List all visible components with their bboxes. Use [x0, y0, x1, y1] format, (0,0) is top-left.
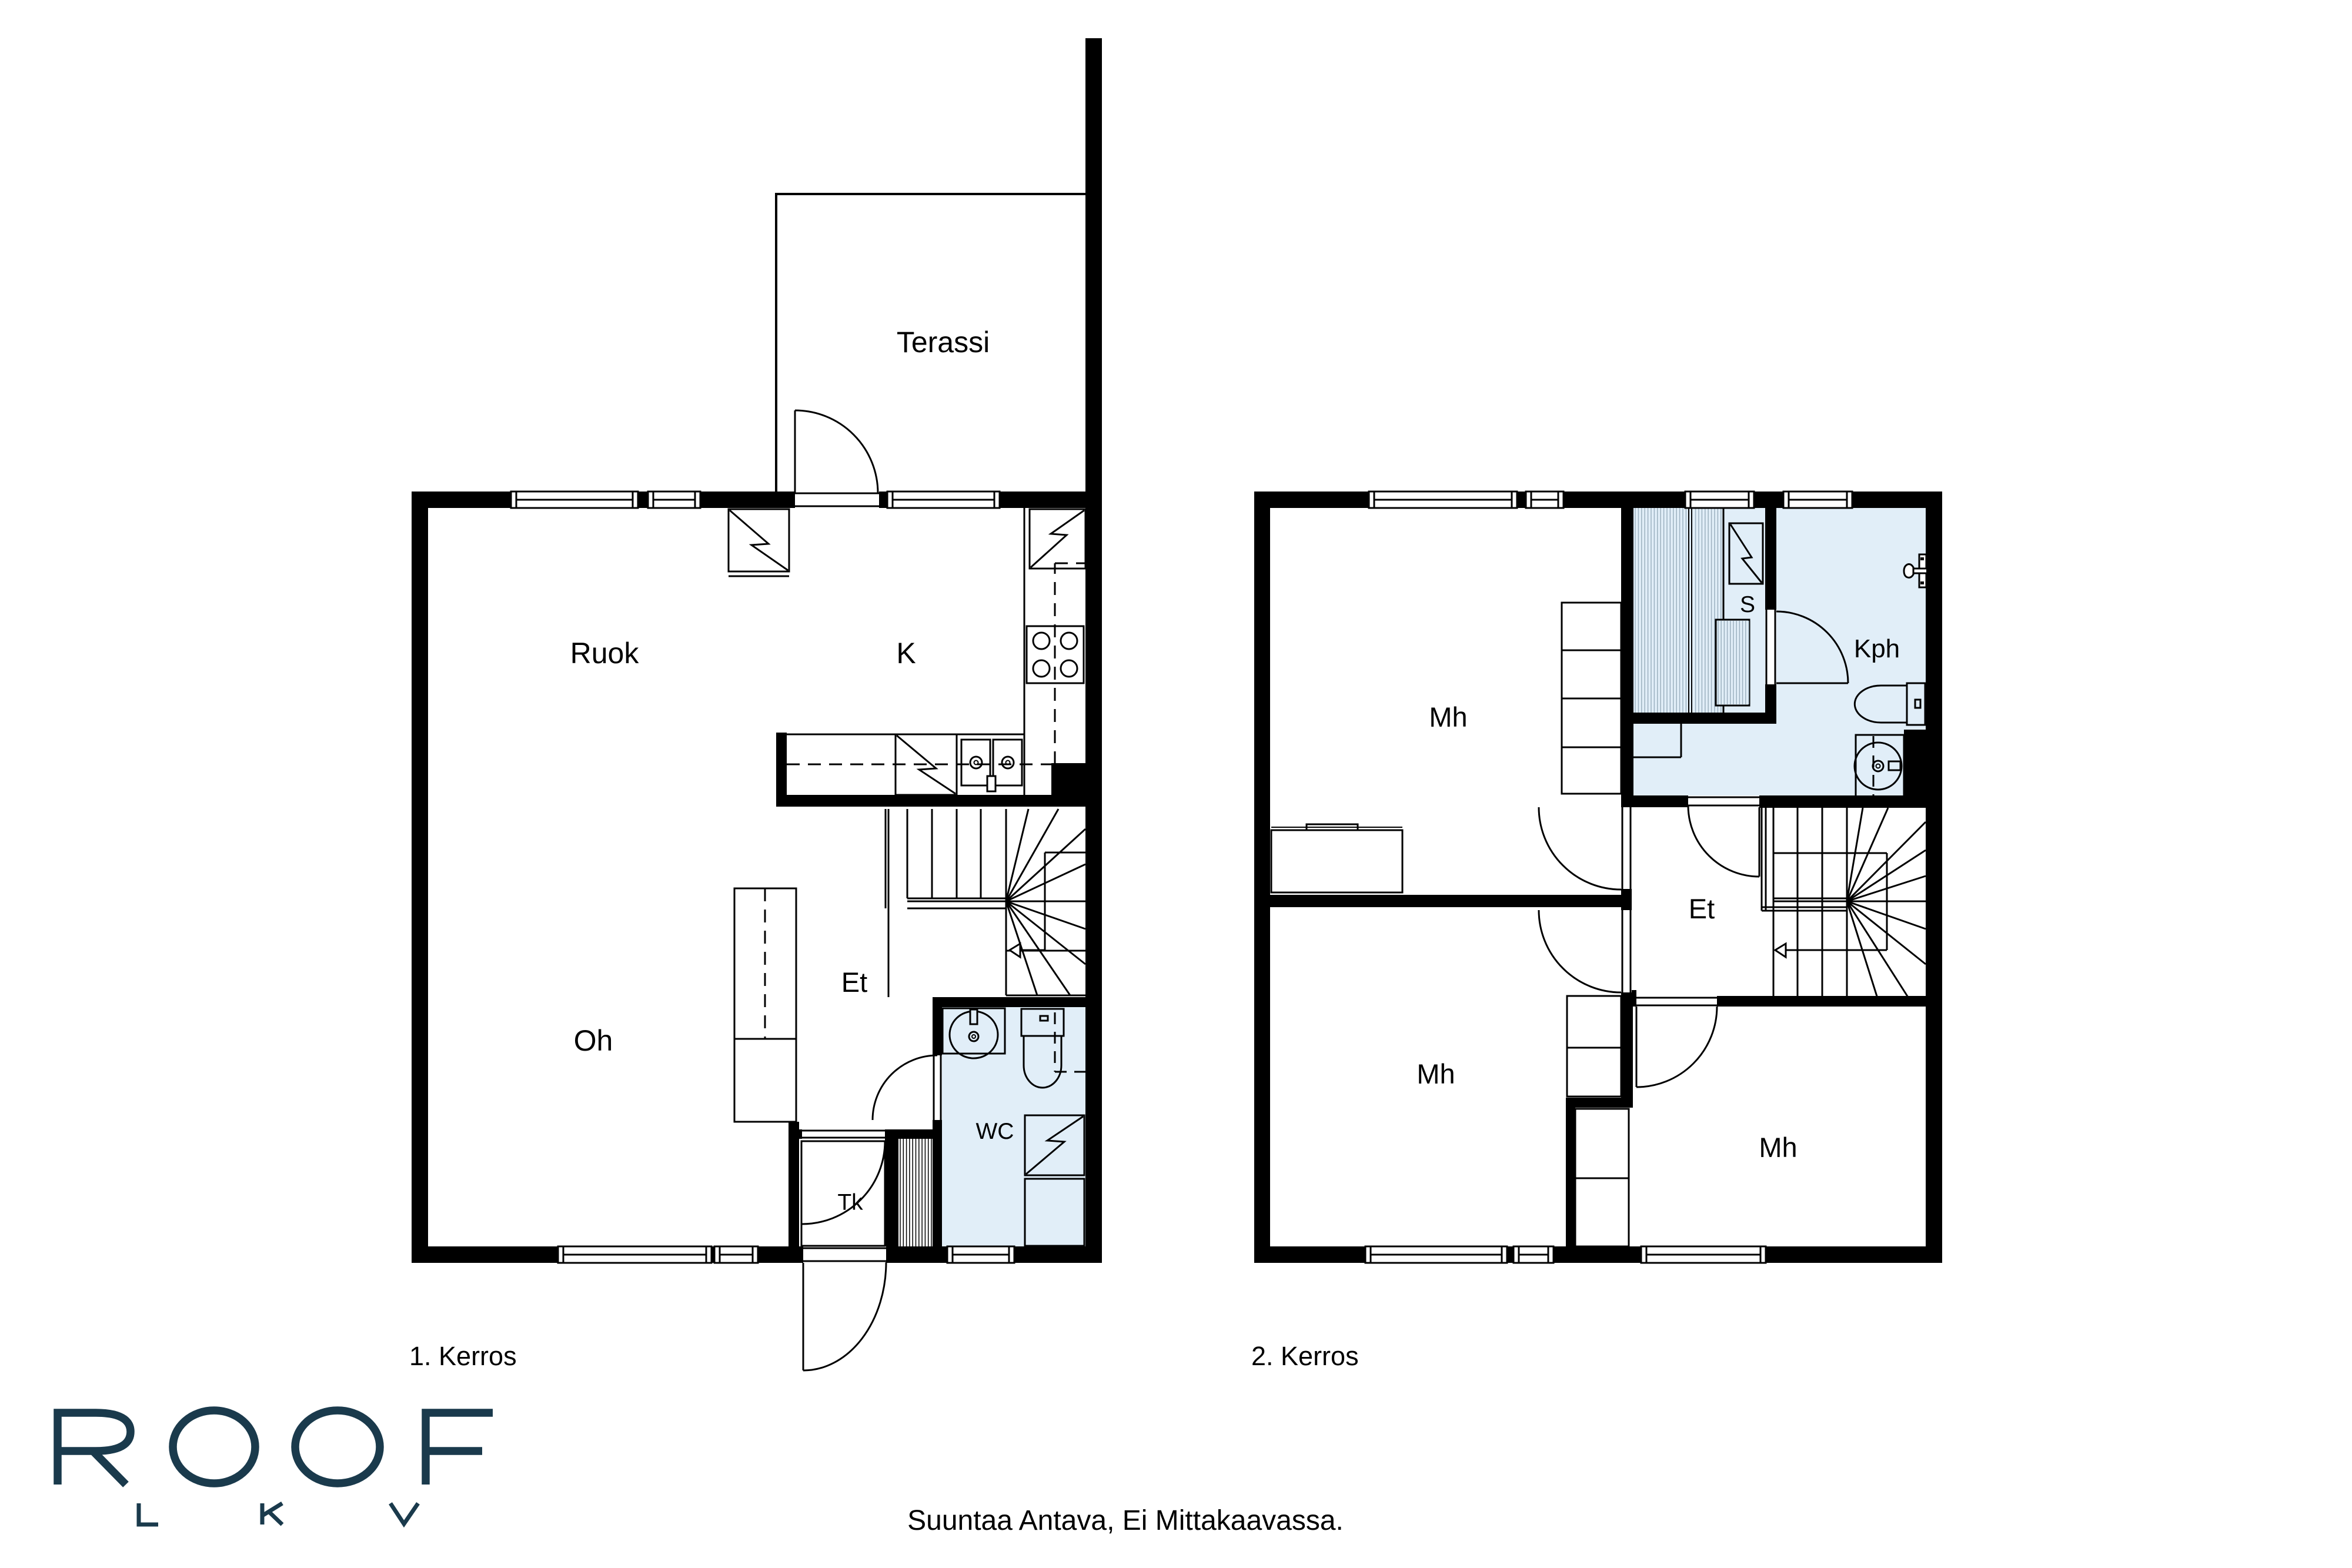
svg-text:K: K — [896, 637, 916, 670]
svg-text:Mh: Mh — [1429, 701, 1467, 733]
svg-text:Terassi: Terassi — [897, 326, 990, 359]
svg-text:Kph: Kph — [1854, 634, 1900, 663]
svg-text:Et: Et — [841, 967, 867, 998]
svg-text:Et: Et — [1689, 893, 1715, 924]
svg-text:Ruok: Ruok — [570, 637, 640, 670]
svg-text:2. Kerros: 2. Kerros — [1251, 1341, 1359, 1371]
svg-text:Mh: Mh — [1416, 1058, 1455, 1089]
svg-text:1. Kerros: 1. Kerros — [409, 1341, 517, 1371]
svg-text:S: S — [1740, 592, 1755, 617]
svg-text:Suuntaa Antava, Ei Mittakaavas: Suuntaa Antava, Ei Mittakaavassa. — [907, 1505, 1344, 1536]
svg-text:Tk: Tk — [837, 1190, 863, 1215]
svg-text:Mh: Mh — [1759, 1132, 1797, 1163]
svg-text:WC: WC — [976, 1119, 1014, 1144]
svg-text:Oh: Oh — [574, 1024, 613, 1057]
